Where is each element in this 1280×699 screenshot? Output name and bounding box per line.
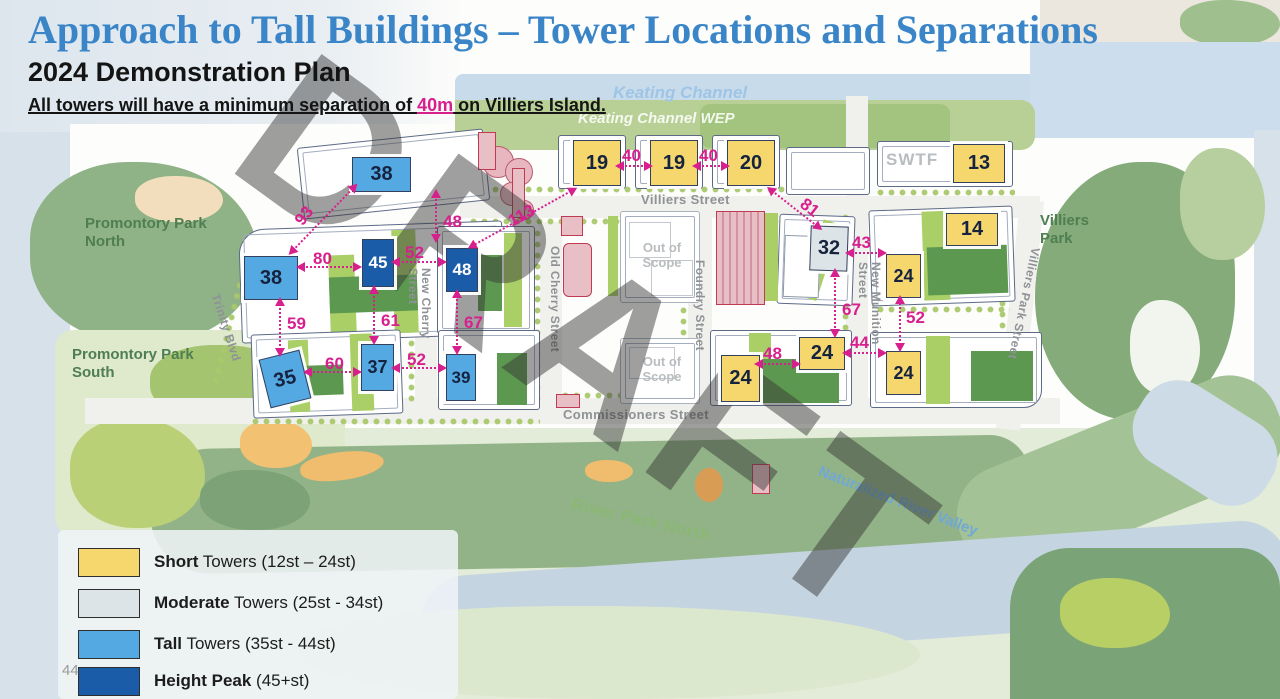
separation-value: 67 [842, 300, 861, 320]
keating-channel-label: Keating Channel [613, 83, 747, 103]
south-green-3 [200, 470, 310, 530]
promontory-park-north-label: Promontory Park North [85, 215, 215, 251]
legend-label-rest: Towers (12st – 24st) [198, 552, 355, 571]
separation-line [456, 292, 458, 352]
separation-value: 52 [407, 350, 426, 370]
green-strip-foundry [765, 213, 778, 301]
legend-item-moderate: Moderate Towers (25st - 34st) [78, 589, 383, 617]
note-suffix: on Villiers Island. [453, 95, 606, 115]
tower-37: 37 [361, 344, 394, 391]
south-orange-1 [240, 420, 312, 468]
legend-swatch-moderate [78, 589, 140, 618]
villiers-park-green-light [1180, 148, 1265, 260]
villiers-street-label: Villiers Street [641, 192, 730, 207]
legend-label-bold: Tall [154, 634, 182, 653]
tower-24-mid-east: 24 [799, 337, 845, 370]
legend-item-tall: Tall Towers (35st - 44st) [78, 630, 336, 658]
page-number: 44 [62, 662, 79, 679]
legend-label-bold: Short [154, 552, 198, 571]
page-subtitle: 2024 Demonstration Plan [28, 57, 351, 88]
tower-13: 13 [953, 144, 1005, 183]
separation-line [834, 271, 836, 335]
tower-38-west: 38 [244, 256, 298, 300]
legend-label-bold: Moderate [154, 593, 230, 612]
separation-value: 48 [763, 344, 782, 364]
separation-value: 40 [622, 146, 641, 166]
separation-line [435, 192, 437, 240]
promontory-park-south-label: Promontory Park South [72, 346, 202, 382]
legend-label-rest: Towers (25st - 34st) [230, 593, 384, 612]
tower-24-southeast: 24 [886, 351, 921, 395]
separation-value: 44 [850, 333, 869, 353]
separation-line [279, 300, 281, 354]
tower-45: 45 [362, 239, 394, 287]
separation-value: 52 [906, 308, 925, 328]
separation-value: 80 [313, 249, 332, 269]
separation-value: 52 [405, 243, 424, 263]
separation-value: 67 [464, 313, 483, 333]
legend-label-bold: Height Peak [154, 671, 251, 690]
note-highlight: 40m [417, 95, 453, 115]
page-title: Approach to Tall Buildings – Tower Locat… [28, 6, 1098, 53]
tower-14: 14 [946, 213, 998, 246]
tower-20: 20 [727, 140, 775, 186]
separation-value: 60 [325, 354, 344, 374]
legend-label-rest: Towers (35st - 44st) [182, 634, 336, 653]
note-prefix: All towers will have a minimum separatio… [28, 95, 417, 115]
legend-swatch-short [78, 548, 140, 577]
tower-19-a: 19 [573, 140, 621, 186]
tower-24-northeast: 24 [886, 254, 921, 298]
min-separation-note: All towers will have a minimum separatio… [28, 95, 606, 116]
separation-value: 43 [852, 233, 871, 253]
legend-swatch-tall [78, 630, 140, 659]
parcel-white-building [786, 147, 870, 195]
slide: Keating Channel Keating Channel WEP Vill… [0, 0, 1280, 699]
legend-label-rest: (45+st) [251, 671, 309, 690]
villiers-park-label: Villiers Park [1040, 212, 1110, 248]
tower-32: 32 [809, 225, 849, 271]
legend-item-short: Short Towers (12st – 24st) [78, 548, 356, 576]
south-green-1 [70, 418, 205, 528]
tree-row [875, 187, 1015, 197]
separation-value: 40 [699, 146, 718, 166]
swtf-label: SWTF [886, 150, 938, 170]
separation-line [899, 298, 901, 349]
separation-line [373, 288, 375, 342]
tower-39: 39 [446, 354, 476, 401]
separation-value: 48 [443, 212, 462, 232]
legend-swatch-height-peak [78, 667, 140, 696]
top-right-water [1030, 42, 1280, 148]
tower-19-b: 19 [650, 140, 698, 186]
separation-value: 61 [381, 311, 400, 331]
valley-yellowgreen [1060, 578, 1170, 648]
tower-48: 48 [446, 248, 478, 292]
legend-item-height-peak: Height Peak (45+st) [78, 667, 309, 695]
separation-value: 59 [287, 314, 306, 334]
top-right-green [1180, 0, 1280, 46]
